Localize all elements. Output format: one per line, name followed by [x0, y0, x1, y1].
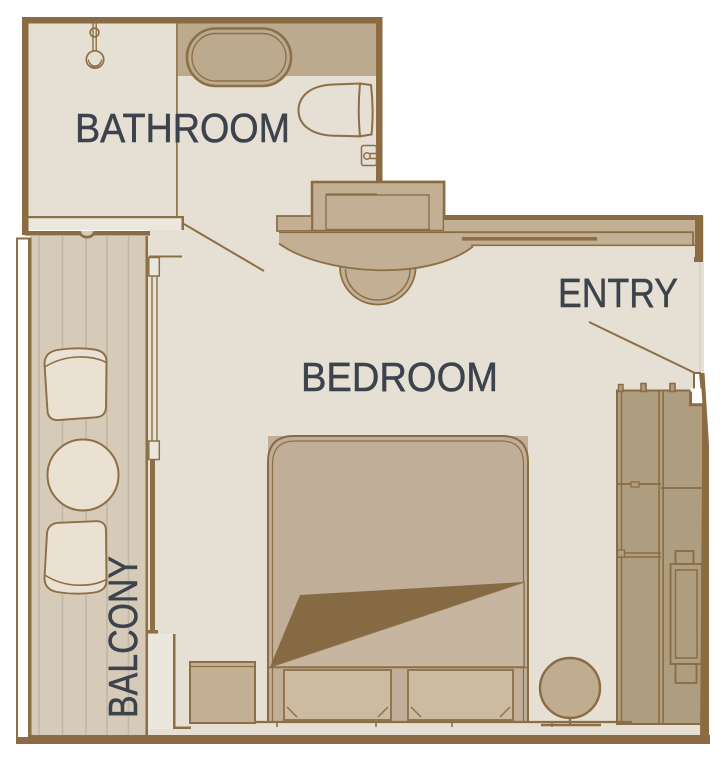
svg-text:ENTRY: ENTRY — [558, 270, 678, 316]
svg-text:BALCONY: BALCONY — [100, 556, 146, 718]
svg-text:BATHROOM: BATHROOM — [75, 105, 290, 151]
svg-text:BEDROOM: BEDROOM — [301, 354, 498, 400]
